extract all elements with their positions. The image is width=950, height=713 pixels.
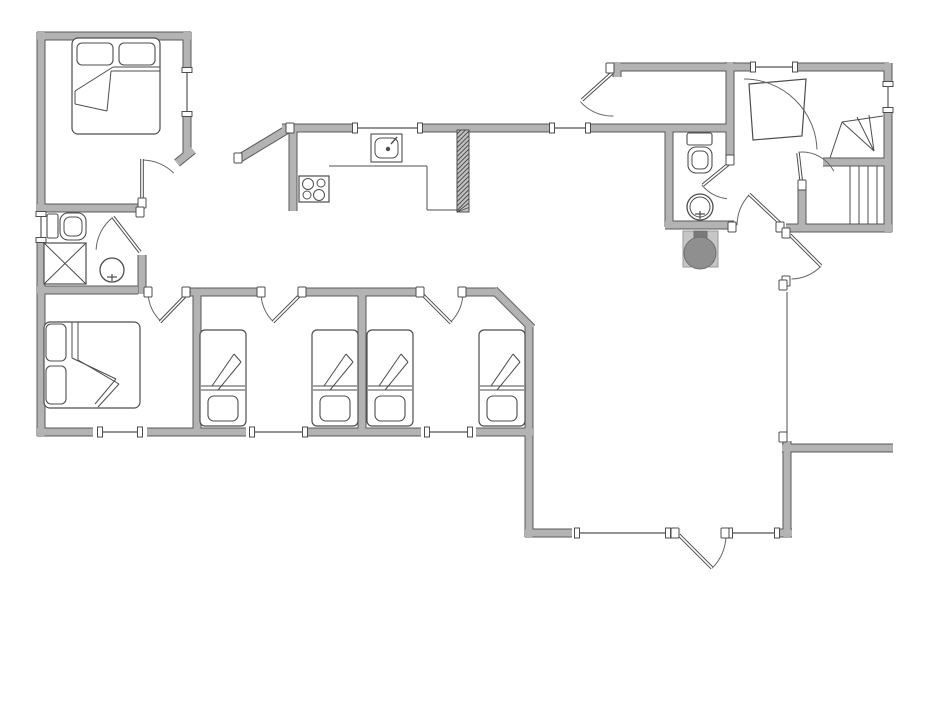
window xyxy=(36,212,46,243)
window xyxy=(550,123,591,133)
door-post xyxy=(606,63,614,73)
door xyxy=(144,287,190,322)
door-swing-arc xyxy=(96,217,113,249)
door xyxy=(138,159,174,208)
toilet-tank xyxy=(47,214,58,238)
door xyxy=(782,228,821,286)
door-post xyxy=(721,528,729,538)
window xyxy=(98,427,143,437)
window xyxy=(751,62,798,72)
door-post xyxy=(458,287,466,297)
door xyxy=(96,207,144,252)
door-post xyxy=(298,287,306,297)
window-frame-cap xyxy=(666,528,671,538)
toilet-tank xyxy=(687,133,712,145)
stair-winder-line xyxy=(842,116,883,122)
window-frame-cap xyxy=(418,123,423,133)
door-post xyxy=(726,155,734,165)
pillow xyxy=(46,366,66,404)
stair-winder-line xyxy=(842,122,874,151)
window-frame-cap xyxy=(586,123,591,133)
door-post xyxy=(671,528,679,538)
door-post xyxy=(234,153,242,163)
sink-drain xyxy=(386,147,390,151)
single-bed xyxy=(367,330,413,426)
door xyxy=(416,287,466,323)
door-leaf-face xyxy=(790,235,821,266)
door-swing-arc xyxy=(712,536,726,568)
toilet xyxy=(687,133,712,173)
water-heater-tank xyxy=(684,237,716,269)
door-post xyxy=(416,287,424,297)
pillow xyxy=(375,396,405,421)
pillow xyxy=(119,43,155,65)
door-post xyxy=(182,287,190,297)
pillow xyxy=(208,396,238,421)
window xyxy=(353,123,423,133)
window-frame-cap xyxy=(182,68,192,73)
double-bed xyxy=(72,38,160,134)
window xyxy=(425,427,473,437)
window-frame-cap xyxy=(303,427,308,437)
chimney xyxy=(457,130,469,212)
window-frame-cap xyxy=(793,62,798,72)
door xyxy=(580,63,614,116)
window xyxy=(575,528,671,538)
window-frame-cap xyxy=(36,212,46,217)
window xyxy=(883,82,893,113)
window-frame-cap xyxy=(98,427,103,437)
pillow xyxy=(46,324,66,361)
door-post xyxy=(286,123,294,133)
pillow xyxy=(320,396,350,421)
floor-plan-page xyxy=(0,0,950,713)
door xyxy=(257,287,306,322)
window xyxy=(728,528,780,538)
kitchen-sink xyxy=(371,134,402,162)
door-swing-arc xyxy=(792,266,822,279)
washbasin xyxy=(100,258,124,282)
pillow xyxy=(77,43,113,65)
window-frame-cap xyxy=(883,82,893,87)
window-frame-cap xyxy=(775,528,780,538)
staircase xyxy=(830,115,883,224)
door-leaf-face xyxy=(420,292,451,323)
washbasin xyxy=(687,194,713,220)
door xyxy=(671,528,729,568)
door-swing-arc xyxy=(737,195,749,226)
wall xyxy=(494,290,532,328)
door-post xyxy=(728,222,736,232)
double-bed xyxy=(44,322,140,408)
door-post xyxy=(257,287,265,297)
water-heater xyxy=(683,231,718,269)
window-frame-cap xyxy=(883,108,893,113)
floor-plan xyxy=(0,0,950,713)
window-frame-cap xyxy=(250,427,255,437)
shower-cabin xyxy=(44,243,86,284)
toilet xyxy=(47,213,86,240)
window-frame-cap xyxy=(36,238,46,243)
wall xyxy=(240,129,288,158)
stair-winder-line xyxy=(830,122,842,158)
door-swing-arc xyxy=(142,160,174,173)
door-post xyxy=(144,287,152,297)
pillow xyxy=(487,396,517,421)
door-post xyxy=(136,207,144,217)
door-leaf-face xyxy=(113,217,140,252)
door-post xyxy=(798,180,806,190)
single-bed xyxy=(200,330,246,426)
door-swing-arc xyxy=(580,102,613,116)
single-bed xyxy=(479,330,525,426)
window xyxy=(250,427,308,437)
stove xyxy=(299,176,329,202)
door-post xyxy=(782,228,790,238)
door-leaf-face xyxy=(679,535,712,568)
corner-closet-outline xyxy=(749,79,806,140)
window-frame-cap xyxy=(468,427,473,437)
window-frame-cap xyxy=(182,112,192,117)
window-frame-cap xyxy=(138,427,143,437)
window-frame-cap xyxy=(425,427,430,437)
door-post xyxy=(779,432,787,442)
window-frame-cap xyxy=(751,62,756,72)
door xyxy=(728,194,784,232)
window-frame-cap xyxy=(353,123,358,133)
door-leaf-face xyxy=(749,194,783,226)
door-post xyxy=(779,280,787,290)
door-leaf-face xyxy=(582,73,612,100)
single-bed xyxy=(312,330,358,426)
corner-closet xyxy=(749,79,806,140)
window-frame-cap xyxy=(550,123,555,133)
window xyxy=(182,68,192,117)
window-frame-cap xyxy=(575,528,580,538)
